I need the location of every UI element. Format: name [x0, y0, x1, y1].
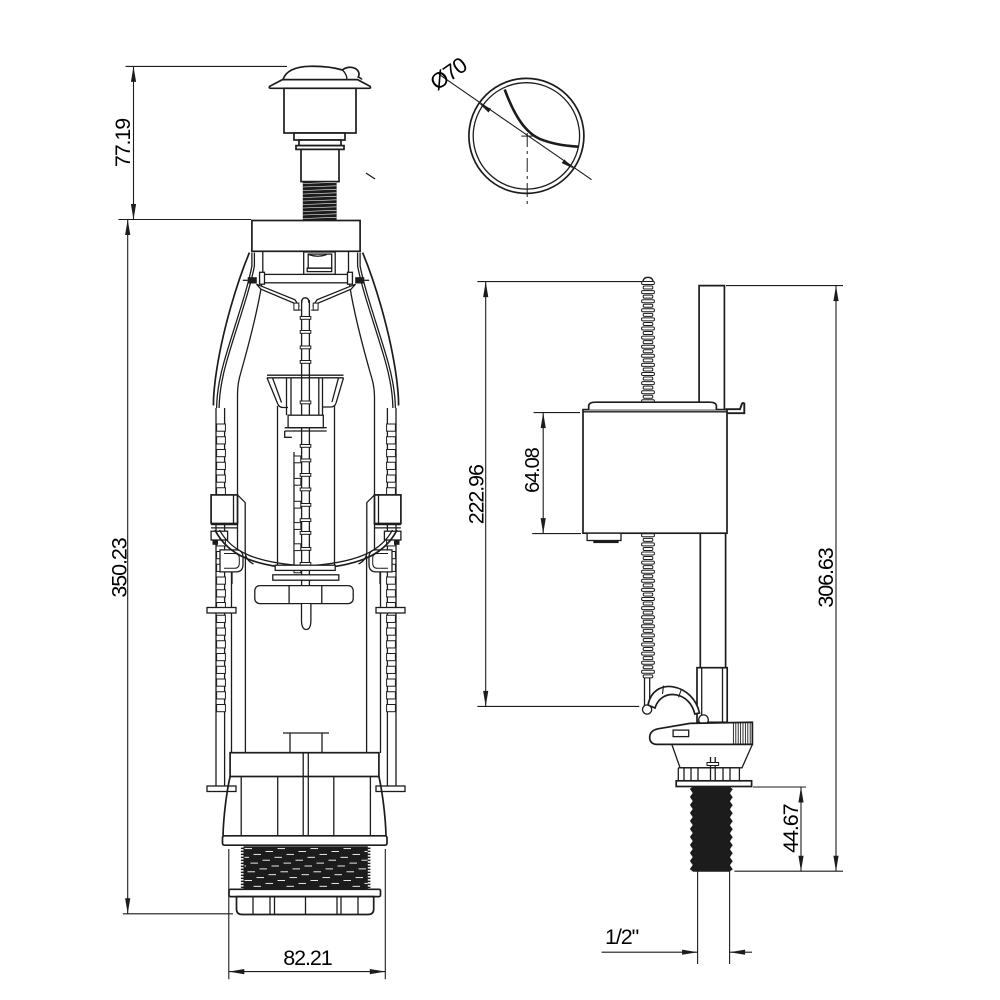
svg-text:77.19: 77.19 — [111, 119, 135, 167]
svg-text:82.21: 82.21 — [283, 946, 331, 970]
svg-text:350.23: 350.23 — [108, 537, 132, 597]
svg-text:222.96: 222.96 — [465, 464, 489, 524]
svg-text:1/2": 1/2" — [605, 925, 639, 949]
svg-text:64.08: 64.08 — [522, 447, 544, 493]
svg-text:44.67: 44.67 — [779, 804, 803, 852]
svg-text:306.63: 306.63 — [814, 547, 838, 607]
